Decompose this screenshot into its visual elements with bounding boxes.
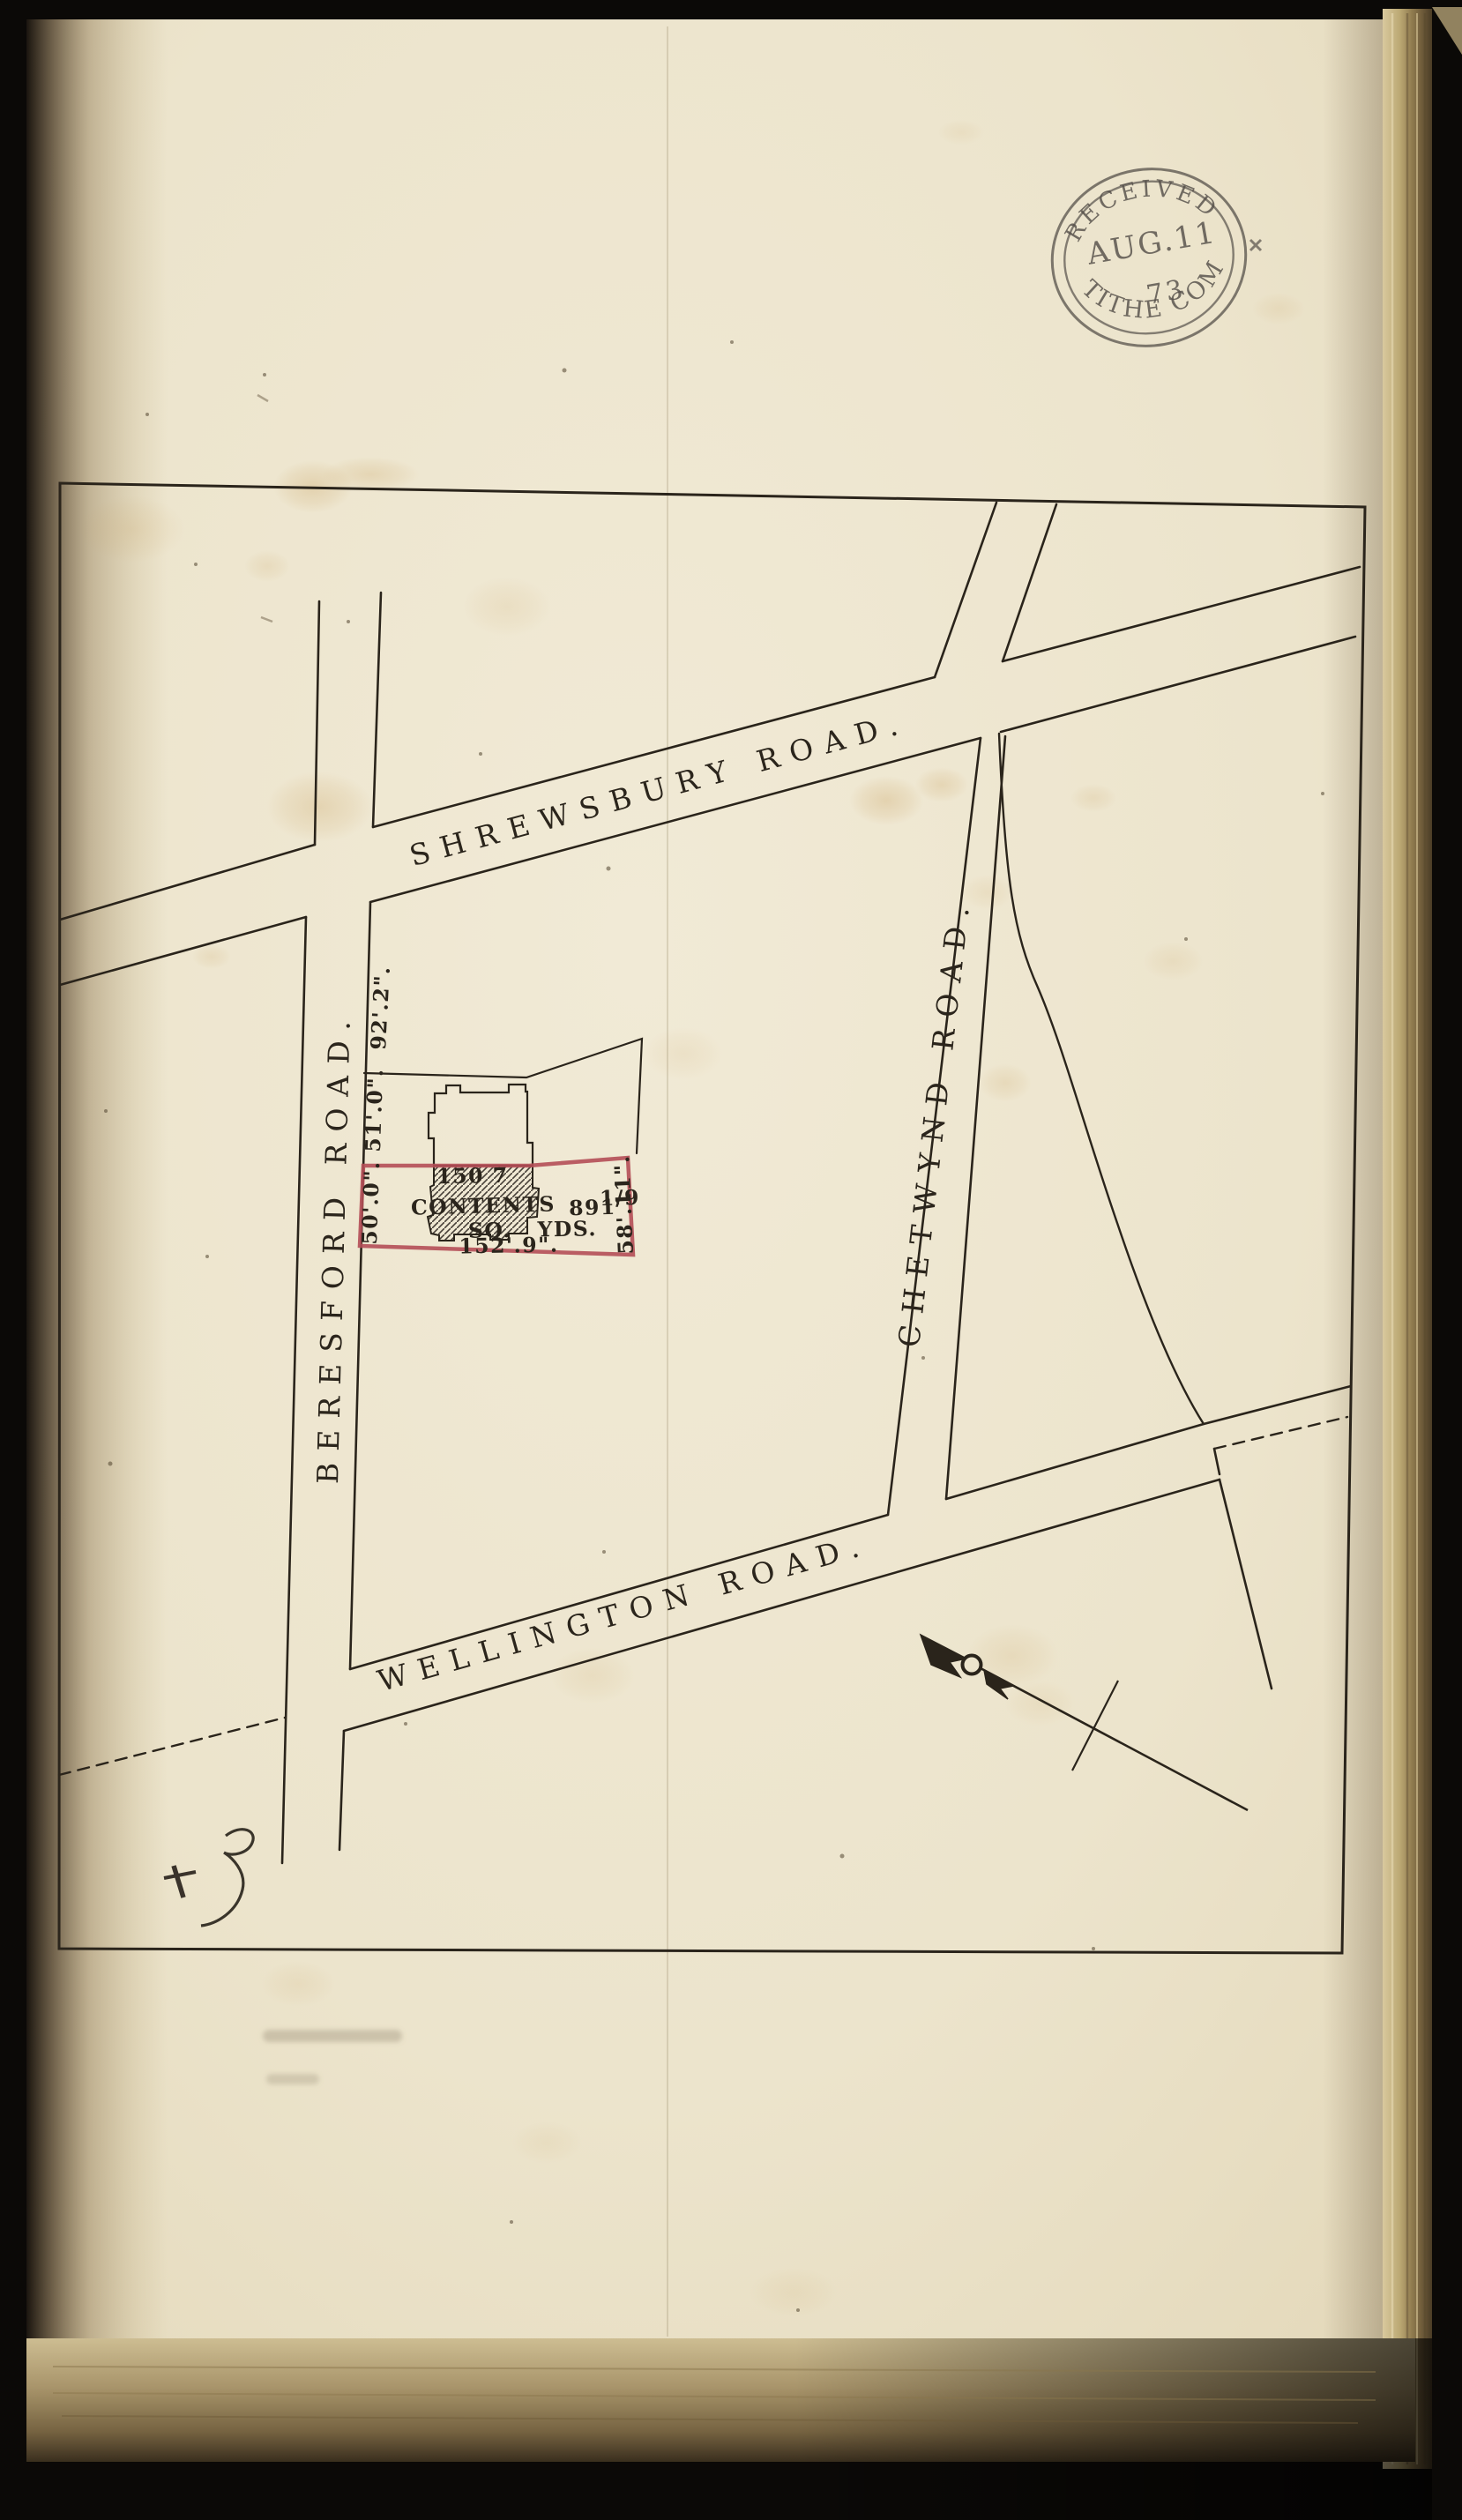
paper-right-shadow	[1323, 19, 1383, 2338]
paper	[26, 19, 1383, 2338]
measurement-92-2: 92'.2".	[366, 966, 395, 1051]
north-arrow-ring-icon	[963, 1656, 981, 1674]
page-scan: SHREWSBURY ROAD. WELLINGTON ROAD. BERESF…	[0, 0, 1462, 2520]
contents-word: CONTENTS	[411, 1191, 556, 1219]
contents-area-fraction: 1/9	[600, 1185, 641, 1211]
measurement-152-9: 152'.9".	[459, 1233, 559, 1259]
measurement-51-0: 51'.0".	[361, 1068, 388, 1152]
measurement-50-0: 50'.0".	[357, 1160, 384, 1245]
scanned-book-photo: SHREWSBURY ROAD. WELLINGTON ROAD. BERESF…	[0, 0, 1462, 2520]
gutter-shadow	[26, 19, 168, 2338]
bottom-right-shadow	[794, 2338, 1432, 2520]
measurement-150-7: 150 7	[436, 1163, 509, 1189]
